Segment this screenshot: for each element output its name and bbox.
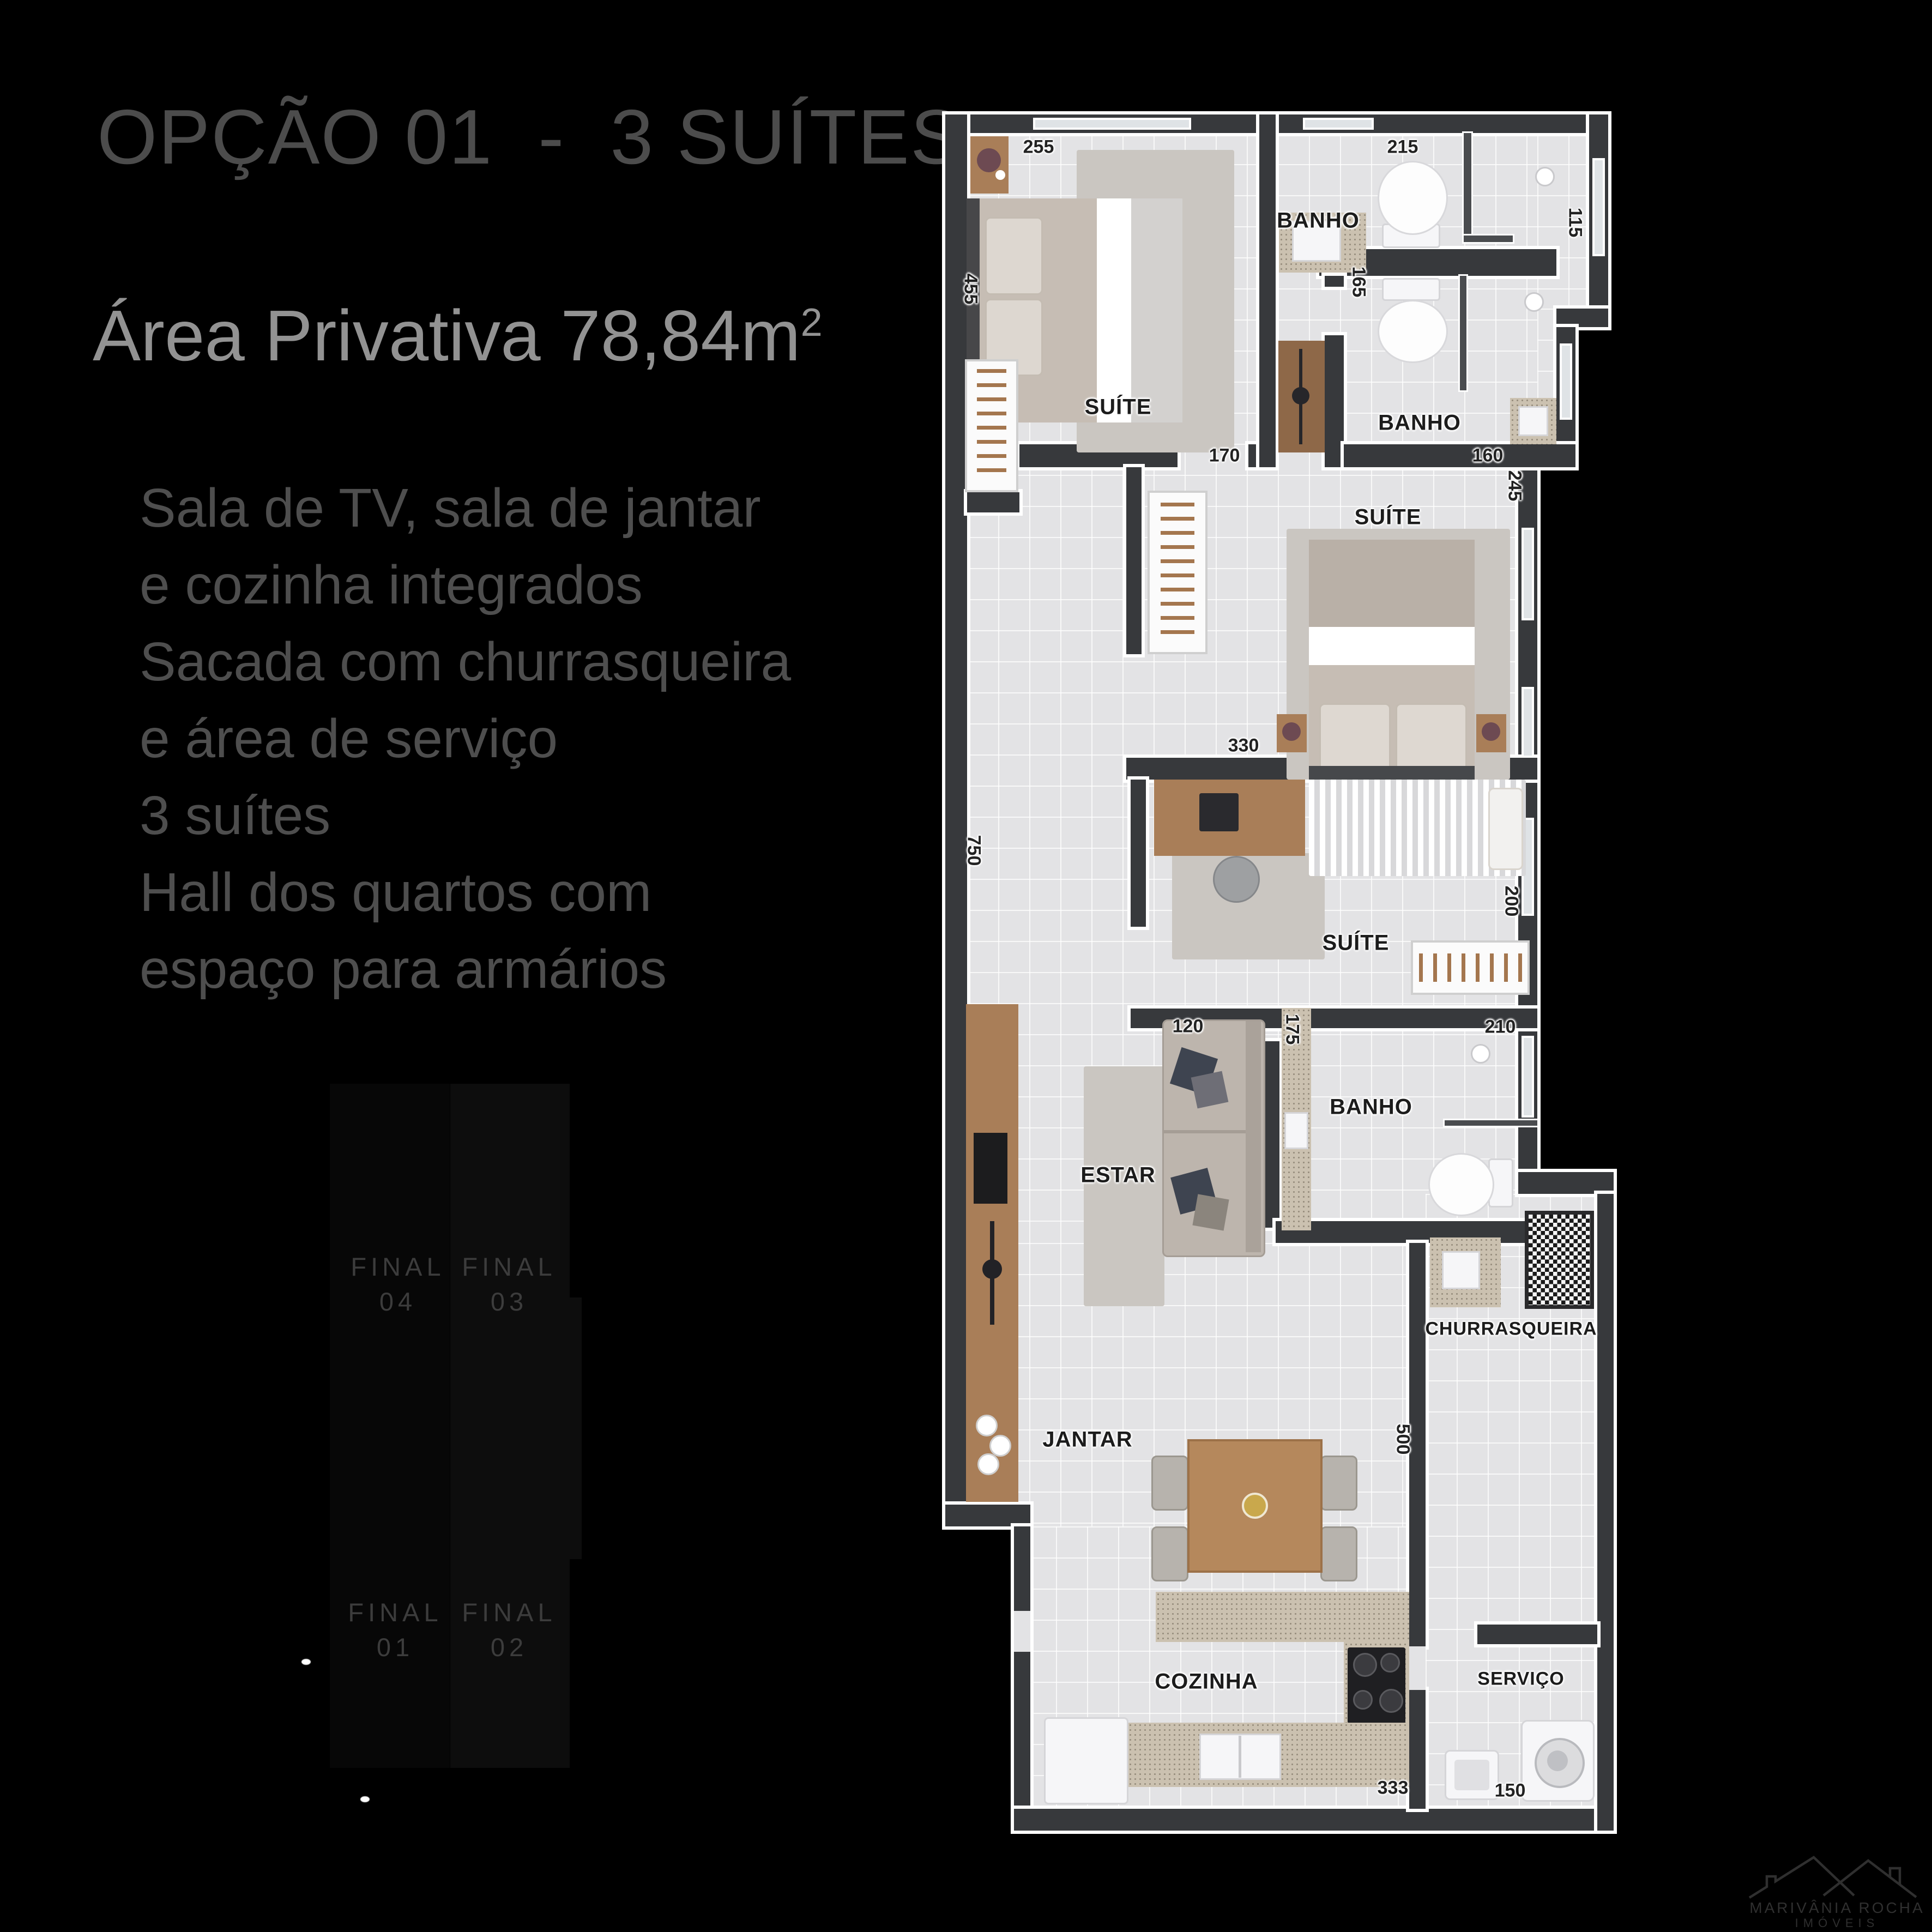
banho2-toilet-tank	[1382, 278, 1440, 301]
cooktop-burner	[1353, 1690, 1373, 1710]
door-left-lower	[1014, 1611, 1030, 1652]
private-area-text: Área Privativa 78,84m	[93, 295, 801, 376]
tv-panel-knob	[982, 1259, 1002, 1279]
wall-left	[945, 114, 967, 1526]
wall-banho3-left	[1265, 1041, 1279, 1228]
room-label-banho-1: BANHO	[1277, 209, 1360, 233]
wall-bottom	[1014, 1809, 1614, 1831]
window-suite2-right-a	[1522, 528, 1534, 620]
realtor-logo: MARIVÂNIA ROCHA IMÓVEIS	[1747, 1845, 1927, 1930]
dimension-500: 500	[1392, 1424, 1414, 1455]
decor-plate	[989, 1435, 1011, 1457]
marker-dot	[301, 1659, 311, 1665]
banho2-shower-glass	[1460, 276, 1466, 390]
window-suite1-top	[1033, 118, 1191, 130]
private-area-superscript: 2	[801, 301, 823, 345]
banho3-shower-glass	[1445, 1120, 1537, 1126]
dimension-200: 200	[1501, 886, 1522, 917]
suite3-laptop	[1199, 793, 1239, 831]
banho1-shower-glass	[1464, 133, 1471, 242]
room-label-banho-3: BANHO	[1330, 1095, 1412, 1120]
banho1-shower-head-icon	[1535, 167, 1555, 186]
dimension-333: 333	[1378, 1778, 1409, 1799]
tv	[974, 1133, 1007, 1204]
wall-suite2-left	[1126, 467, 1142, 654]
wall-suite1-banho1	[1259, 114, 1276, 467]
suite2-pillow	[1396, 703, 1467, 772]
fridge	[1044, 1717, 1128, 1804]
decor-plate	[977, 1453, 999, 1475]
keyplan-unit-final-04: FINAL 04	[351, 1249, 445, 1319]
closet-hangers-icon	[977, 369, 1006, 482]
door-servico	[1409, 1646, 1426, 1690]
suite2-bed-fold	[1309, 627, 1475, 665]
wall-sacada-left-b	[1409, 1690, 1426, 1809]
page-title: OPÇÃO 01 - 3 SUÍTES	[97, 93, 963, 182]
private-area-label: Área Privativa 78,84m2	[93, 294, 823, 377]
table-centerpiece	[1242, 1493, 1268, 1519]
room-label-cozinha: COZINHA	[1155, 1670, 1258, 1694]
dimension-170: 170	[1209, 445, 1240, 467]
wall-right-sacada	[1597, 1194, 1614, 1831]
sofa-pillow	[1191, 1071, 1229, 1109]
window-banho1-top	[1303, 118, 1374, 130]
cooktop-burner	[1379, 1689, 1403, 1713]
dimension-455: 455	[960, 274, 981, 305]
dimension-245: 245	[1504, 470, 1525, 502]
logo-name: MARIVÂNIA ROCHA	[1749, 1899, 1924, 1916]
floor-plan: SUÍTE BANHO BANHO SUÍTE SUÍTE BANHO ESTA…	[943, 109, 1625, 1837]
dining-chair	[1320, 1526, 1357, 1581]
roofline-logo-icon: MARIVÂNIA ROCHA IMÓVEIS	[1747, 1845, 1927, 1930]
dining-chair	[1320, 1456, 1357, 1511]
dimension-120: 120	[1173, 1016, 1204, 1037]
window-banho2-right	[1560, 343, 1572, 420]
suite1-decor-dot	[995, 170, 1005, 180]
suite2-closet	[1148, 491, 1207, 654]
dining-chair	[1151, 1456, 1188, 1511]
room-label-servico: SERVIÇO	[1477, 1669, 1564, 1690]
banho3-sink	[1284, 1112, 1308, 1149]
laundry-tub-basin	[1454, 1760, 1489, 1790]
suite2-vase	[1282, 722, 1301, 741]
closet-hangers-icon	[1161, 503, 1194, 643]
banho2-shower-head-icon	[1524, 292, 1544, 312]
wall-suite2-top	[1344, 444, 1575, 467]
suite3-wardrobe	[1411, 940, 1530, 995]
banho1-shower-glass-b	[1464, 236, 1513, 242]
banho3-shower-head-icon	[1471, 1044, 1490, 1064]
room-label-suite-3: SUÍTE	[1323, 931, 1390, 956]
keyplan-unit-final-03: FINAL 03	[462, 1249, 556, 1319]
banho1-toilet-bowl	[1378, 161, 1448, 235]
keyplan-right-column	[450, 1084, 570, 1768]
suite1-closet	[965, 359, 1018, 492]
window-banho1-right	[1592, 158, 1605, 256]
wall-banho2-left-a	[1325, 276, 1344, 287]
suite3-pillow	[1488, 788, 1523, 870]
dimension-210: 210	[1485, 1017, 1516, 1038]
logo-subtitle: IMÓVEIS	[1795, 1916, 1880, 1930]
wall-step-left	[945, 1505, 1030, 1526]
hall-wardrobe-knob	[1292, 387, 1309, 404]
washing-machine-drum-icon	[1547, 1750, 1568, 1771]
cooktop-burner	[1380, 1653, 1400, 1673]
kitchen-sink-divider	[1239, 1736, 1241, 1778]
dimension-175: 175	[1282, 1014, 1303, 1045]
kitchen-peninsula	[1156, 1592, 1409, 1642]
dimension-750: 750	[963, 835, 985, 866]
banho3-toilet-bowl	[1428, 1153, 1494, 1216]
keyplan-unit-final-02: FINAL 02	[462, 1595, 556, 1665]
decor-plate	[976, 1415, 998, 1436]
wall-suite3-left	[1131, 780, 1146, 927]
wall-step-1	[1556, 309, 1608, 327]
grill	[1525, 1211, 1594, 1309]
dimension-115: 115	[1565, 208, 1586, 238]
suite3-chair	[1213, 856, 1260, 903]
suite2-bed-blanket	[1309, 540, 1475, 627]
suite1-bed-fold	[1097, 198, 1131, 422]
suite2-vase	[1482, 722, 1500, 741]
room-label-suite-2: SUÍTE	[1355, 505, 1422, 530]
wall-banho2-left-b	[1325, 335, 1344, 467]
keyplan-left-column	[330, 1084, 450, 1768]
wall-left-lower	[1014, 1526, 1030, 1809]
dining-chair	[1151, 1526, 1188, 1581]
sofa-seam	[1164, 1130, 1246, 1133]
cooktop-burner	[1353, 1653, 1377, 1677]
suite2-bed-headboard	[1309, 766, 1475, 780]
room-label-churrasqueira: CHURRASQUEIRA	[1425, 1319, 1597, 1340]
dimension-215: 215	[1387, 137, 1418, 158]
dimension-160: 160	[1472, 445, 1504, 467]
window-suite2-right-b	[1522, 687, 1534, 758]
dimension-255: 255	[1023, 137, 1054, 158]
wall-churrasqueira-servico	[1477, 1625, 1597, 1644]
suite1-vase	[977, 148, 1001, 172]
dimension-330: 330	[1228, 735, 1259, 757]
window-banho3-right	[1522, 1036, 1534, 1118]
marker-dot	[360, 1796, 370, 1802]
dimension-165: 165	[1348, 267, 1369, 298]
room-label-jantar: JANTAR	[1042, 1428, 1132, 1452]
room-label-estar: ESTAR	[1080, 1163, 1156, 1188]
page: OPÇÃO 01 - 3 SUÍTES Área Privativa 78,84…	[0, 0, 1932, 1932]
closet-hangers-icon	[1419, 953, 1522, 982]
dimension-150: 150	[1495, 1780, 1526, 1802]
banho2-toilet-bowl	[1378, 300, 1448, 363]
suite1-pillow	[985, 217, 1043, 295]
banho2-sink	[1518, 406, 1548, 436]
suite2-pillow	[1319, 703, 1391, 772]
sacada-sink	[1442, 1251, 1480, 1289]
sofa-pillow	[1192, 1194, 1229, 1230]
keyplan-right-bump	[570, 1297, 582, 1559]
suite1-bed-sheet	[1131, 198, 1182, 422]
keyplan-unit-final-01: FINAL 01	[348, 1595, 442, 1665]
room-label-banho-2: BANHO	[1378, 411, 1461, 436]
sofa-back	[1246, 1021, 1261, 1252]
wall-sacada-top	[1518, 1172, 1614, 1194]
room-label-suite-1: SUÍTE	[1085, 395, 1152, 420]
wall-closet-nook	[967, 492, 1019, 512]
feature-list: Sala de TV, sala de jantar e cozinha int…	[140, 470, 791, 1008]
